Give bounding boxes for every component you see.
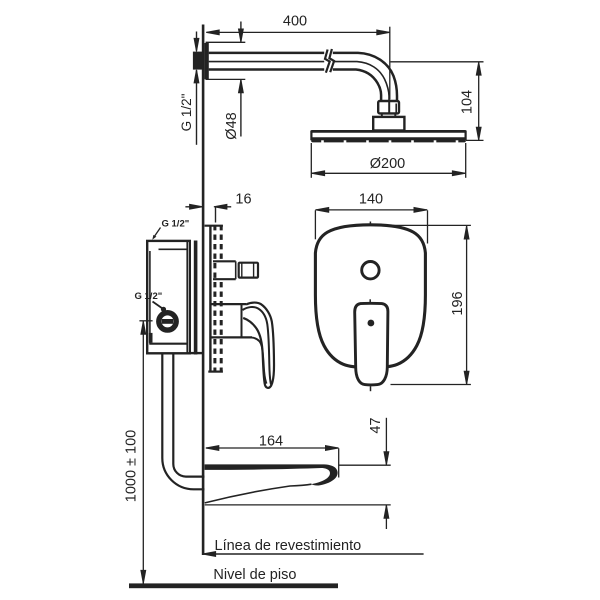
svg-text:Ø200: Ø200	[370, 156, 405, 172]
svg-text:Línea de revestimiento: Línea de revestimiento	[215, 538, 362, 554]
svg-text:164: 164	[259, 433, 283, 449]
svg-text:104: 104	[459, 90, 475, 114]
svg-text:G 1/2": G 1/2"	[179, 93, 194, 131]
svg-text:G 1/2": G 1/2"	[162, 219, 190, 230]
svg-text:140: 140	[359, 191, 383, 207]
svg-text:1000 ± 100: 1000 ± 100	[124, 430, 140, 502]
svg-text:G 1/2": G 1/2"	[135, 291, 163, 302]
svg-text:196: 196	[450, 291, 466, 315]
svg-text:400: 400	[283, 13, 307, 29]
svg-text:Nivel de piso: Nivel de piso	[213, 567, 296, 583]
svg-text:Ø48: Ø48	[224, 112, 240, 139]
svg-text:16: 16	[235, 191, 251, 207]
svg-text:47: 47	[368, 418, 384, 434]
